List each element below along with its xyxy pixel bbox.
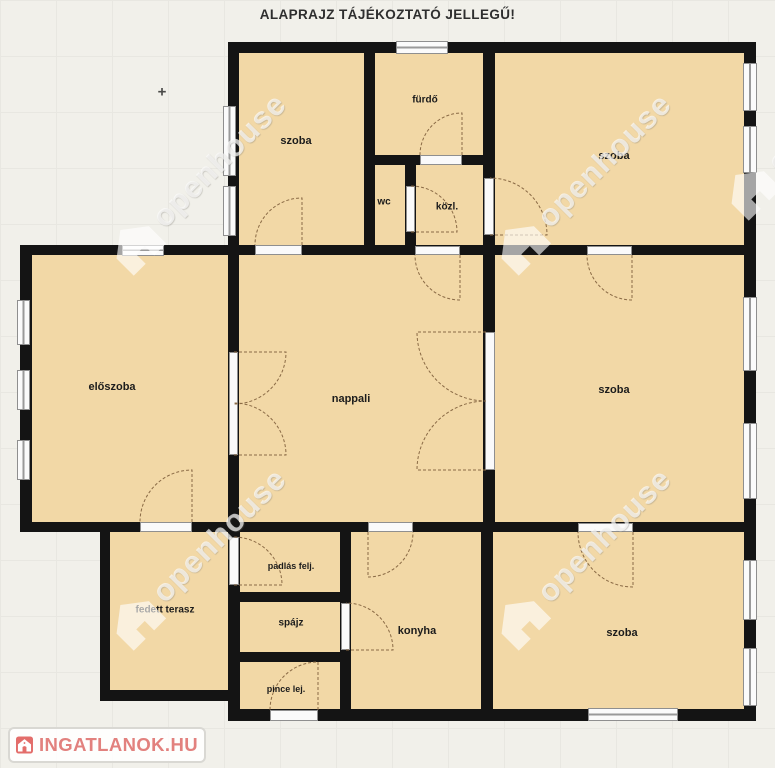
window [743,560,757,620]
window [588,708,678,721]
door-opening [229,352,238,455]
door-opening [255,245,302,255]
floorplan-page: ALAPRAJZ TÁJÉKOZTATÓ JELLEGŰ! + [0,0,775,768]
room-label-szoba-top-right: szoba [598,150,629,162]
door-opening [420,155,462,165]
wall [364,42,375,255]
door-opening [341,603,350,650]
page-title: ALAPRAJZ TÁJÉKOZTATÓ JELLEGŰ! [0,7,775,22]
ingatlanok-logo: INGATLANOK.HU [8,727,206,763]
door-opening [140,522,192,532]
door-opening [229,537,239,585]
room-label-fedett-terasz: fedett terasz [136,605,195,616]
window [743,423,757,499]
room-label-wc: wc [377,197,390,208]
window [17,300,30,345]
window [223,186,236,236]
window [223,106,236,176]
room-label-szoba-bottom-right: szoba [606,627,637,639]
room-label-konyha: konyha [398,625,437,637]
door-opening [587,246,632,255]
door-opening [485,332,495,470]
window [17,370,30,410]
crosshair-marker: + [158,84,167,101]
room-label-nappali: nappali [332,393,371,405]
door-opening [406,186,415,232]
wall [228,592,351,602]
room-label-szoba-top-left: szoba [280,135,311,147]
room-label-eloszoba: előszoba [88,381,135,393]
window [122,245,164,256]
wall [228,652,351,662]
room-label-szoba-right: szoba [598,384,629,396]
room-label-pince-lej: pince lej. [267,684,306,694]
wall [100,690,240,701]
room-label-kozl: közl. [436,202,458,213]
window [17,440,30,480]
window [396,41,448,54]
door-opening [484,178,494,235]
room-label-spajz: spájz [278,618,303,629]
door-opening [270,710,318,721]
window [743,63,757,111]
door-opening [578,523,633,532]
wall [100,532,110,700]
room-label-furdo: fürdő [412,95,438,106]
house-icon [16,732,33,758]
door-opening [415,246,460,255]
window [743,648,757,706]
room-label-padlas-felj: padlás felj. [268,561,315,571]
window [743,126,757,173]
window [743,297,757,371]
logo-text: INGATLANOK.HU [39,734,198,756]
door-opening [368,522,413,532]
wall [481,522,493,721]
